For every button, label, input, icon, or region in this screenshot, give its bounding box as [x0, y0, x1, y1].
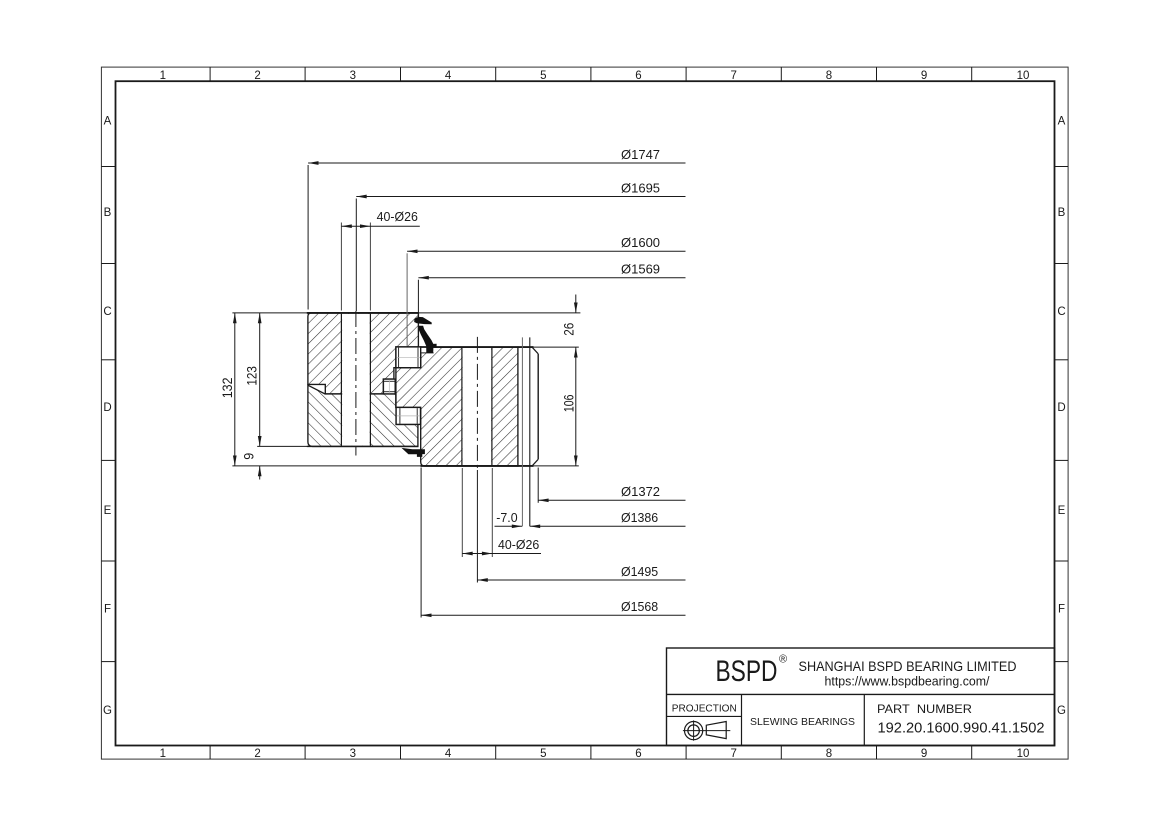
- svg-text:Ø1386: Ø1386: [621, 510, 658, 525]
- svg-text:4: 4: [445, 70, 452, 82]
- svg-text:E: E: [104, 505, 112, 517]
- svg-text:PROJECTION: PROJECTION: [672, 703, 737, 715]
- svg-text:6: 6: [635, 70, 641, 82]
- svg-text:9: 9: [921, 748, 927, 760]
- svg-text:7: 7: [730, 70, 736, 82]
- svg-text:Ø1495: Ø1495: [621, 564, 658, 579]
- svg-text:106: 106: [560, 394, 576, 412]
- svg-text:3: 3: [350, 748, 356, 760]
- svg-text:5: 5: [540, 70, 546, 82]
- svg-text:BSPD: BSPD: [716, 655, 778, 688]
- svg-text:PART NUMBER: PART NUMBER: [877, 702, 972, 716]
- svg-text:Ø1568: Ø1568: [621, 599, 658, 614]
- svg-text:7: 7: [730, 748, 736, 760]
- svg-text:Ø1600: Ø1600: [621, 235, 660, 250]
- svg-text:Ø1695: Ø1695: [621, 180, 660, 195]
- svg-text:A: A: [104, 116, 112, 128]
- svg-text:1: 1: [160, 70, 166, 82]
- svg-text:F: F: [1058, 604, 1065, 616]
- svg-text:8: 8: [826, 748, 832, 760]
- svg-text:E: E: [1058, 505, 1066, 517]
- svg-text:26: 26: [561, 323, 577, 336]
- svg-text:192.20.1600.990.41.1502: 192.20.1600.990.41.1502: [878, 720, 1045, 737]
- svg-text:6: 6: [635, 748, 641, 760]
- svg-text:https://www.bspdbearing.com/: https://www.bspdbearing.com/: [825, 674, 991, 688]
- svg-text:9: 9: [921, 70, 927, 82]
- svg-text:C: C: [1057, 306, 1065, 318]
- svg-text:10: 10: [1017, 70, 1030, 82]
- svg-text:SLEWING BEARINGS: SLEWING BEARINGS: [750, 716, 855, 728]
- svg-text:G: G: [1057, 705, 1066, 717]
- svg-text:D: D: [103, 402, 111, 414]
- svg-text:2: 2: [254, 70, 260, 82]
- svg-text:B: B: [1058, 207, 1066, 219]
- svg-text:40-Ø26: 40-Ø26: [498, 537, 539, 552]
- svg-text:A: A: [1058, 116, 1066, 128]
- svg-text:D: D: [1057, 402, 1065, 414]
- svg-text:F: F: [104, 604, 111, 616]
- svg-text:Ø1569: Ø1569: [621, 262, 660, 277]
- svg-text:2: 2: [254, 748, 260, 760]
- svg-text:1: 1: [160, 748, 166, 760]
- svg-text:G: G: [103, 705, 112, 717]
- svg-text:132: 132: [219, 377, 235, 398]
- svg-text:-7.0: -7.0: [496, 510, 517, 525]
- svg-text:C: C: [103, 306, 111, 318]
- svg-text:123: 123: [244, 366, 260, 386]
- svg-text:SHANGHAI BSPD BEARING LIMITED: SHANGHAI BSPD BEARING LIMITED: [799, 658, 1017, 674]
- svg-text:®: ®: [779, 654, 787, 666]
- svg-text:Ø1747: Ø1747: [621, 147, 660, 162]
- svg-text:Ø1372: Ø1372: [621, 484, 660, 499]
- svg-text:40-Ø26: 40-Ø26: [377, 209, 418, 224]
- svg-text:10: 10: [1017, 748, 1030, 760]
- svg-text:4: 4: [445, 748, 452, 760]
- svg-text:8: 8: [826, 70, 832, 82]
- svg-text:3: 3: [350, 70, 356, 82]
- svg-text:B: B: [104, 207, 112, 219]
- svg-text:9: 9: [240, 453, 256, 460]
- svg-text:5: 5: [540, 748, 546, 760]
